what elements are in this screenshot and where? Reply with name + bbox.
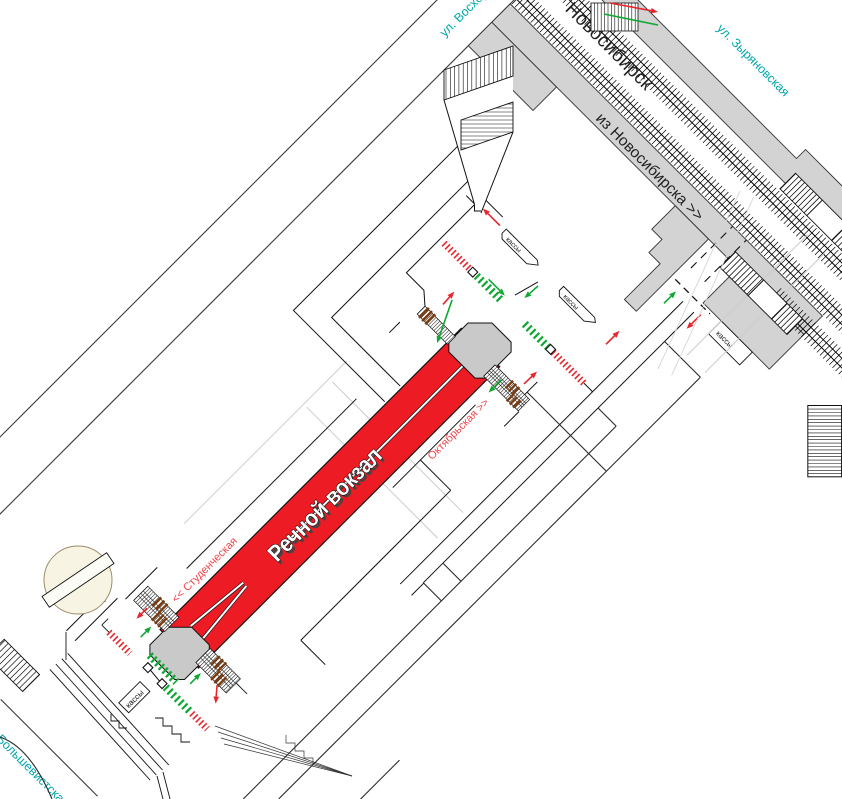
svg-text:из Новосибирска >>: из Новосибирска >> (592, 110, 707, 225)
svg-text:Речной вокзал: Речной вокзал (262, 442, 386, 566)
